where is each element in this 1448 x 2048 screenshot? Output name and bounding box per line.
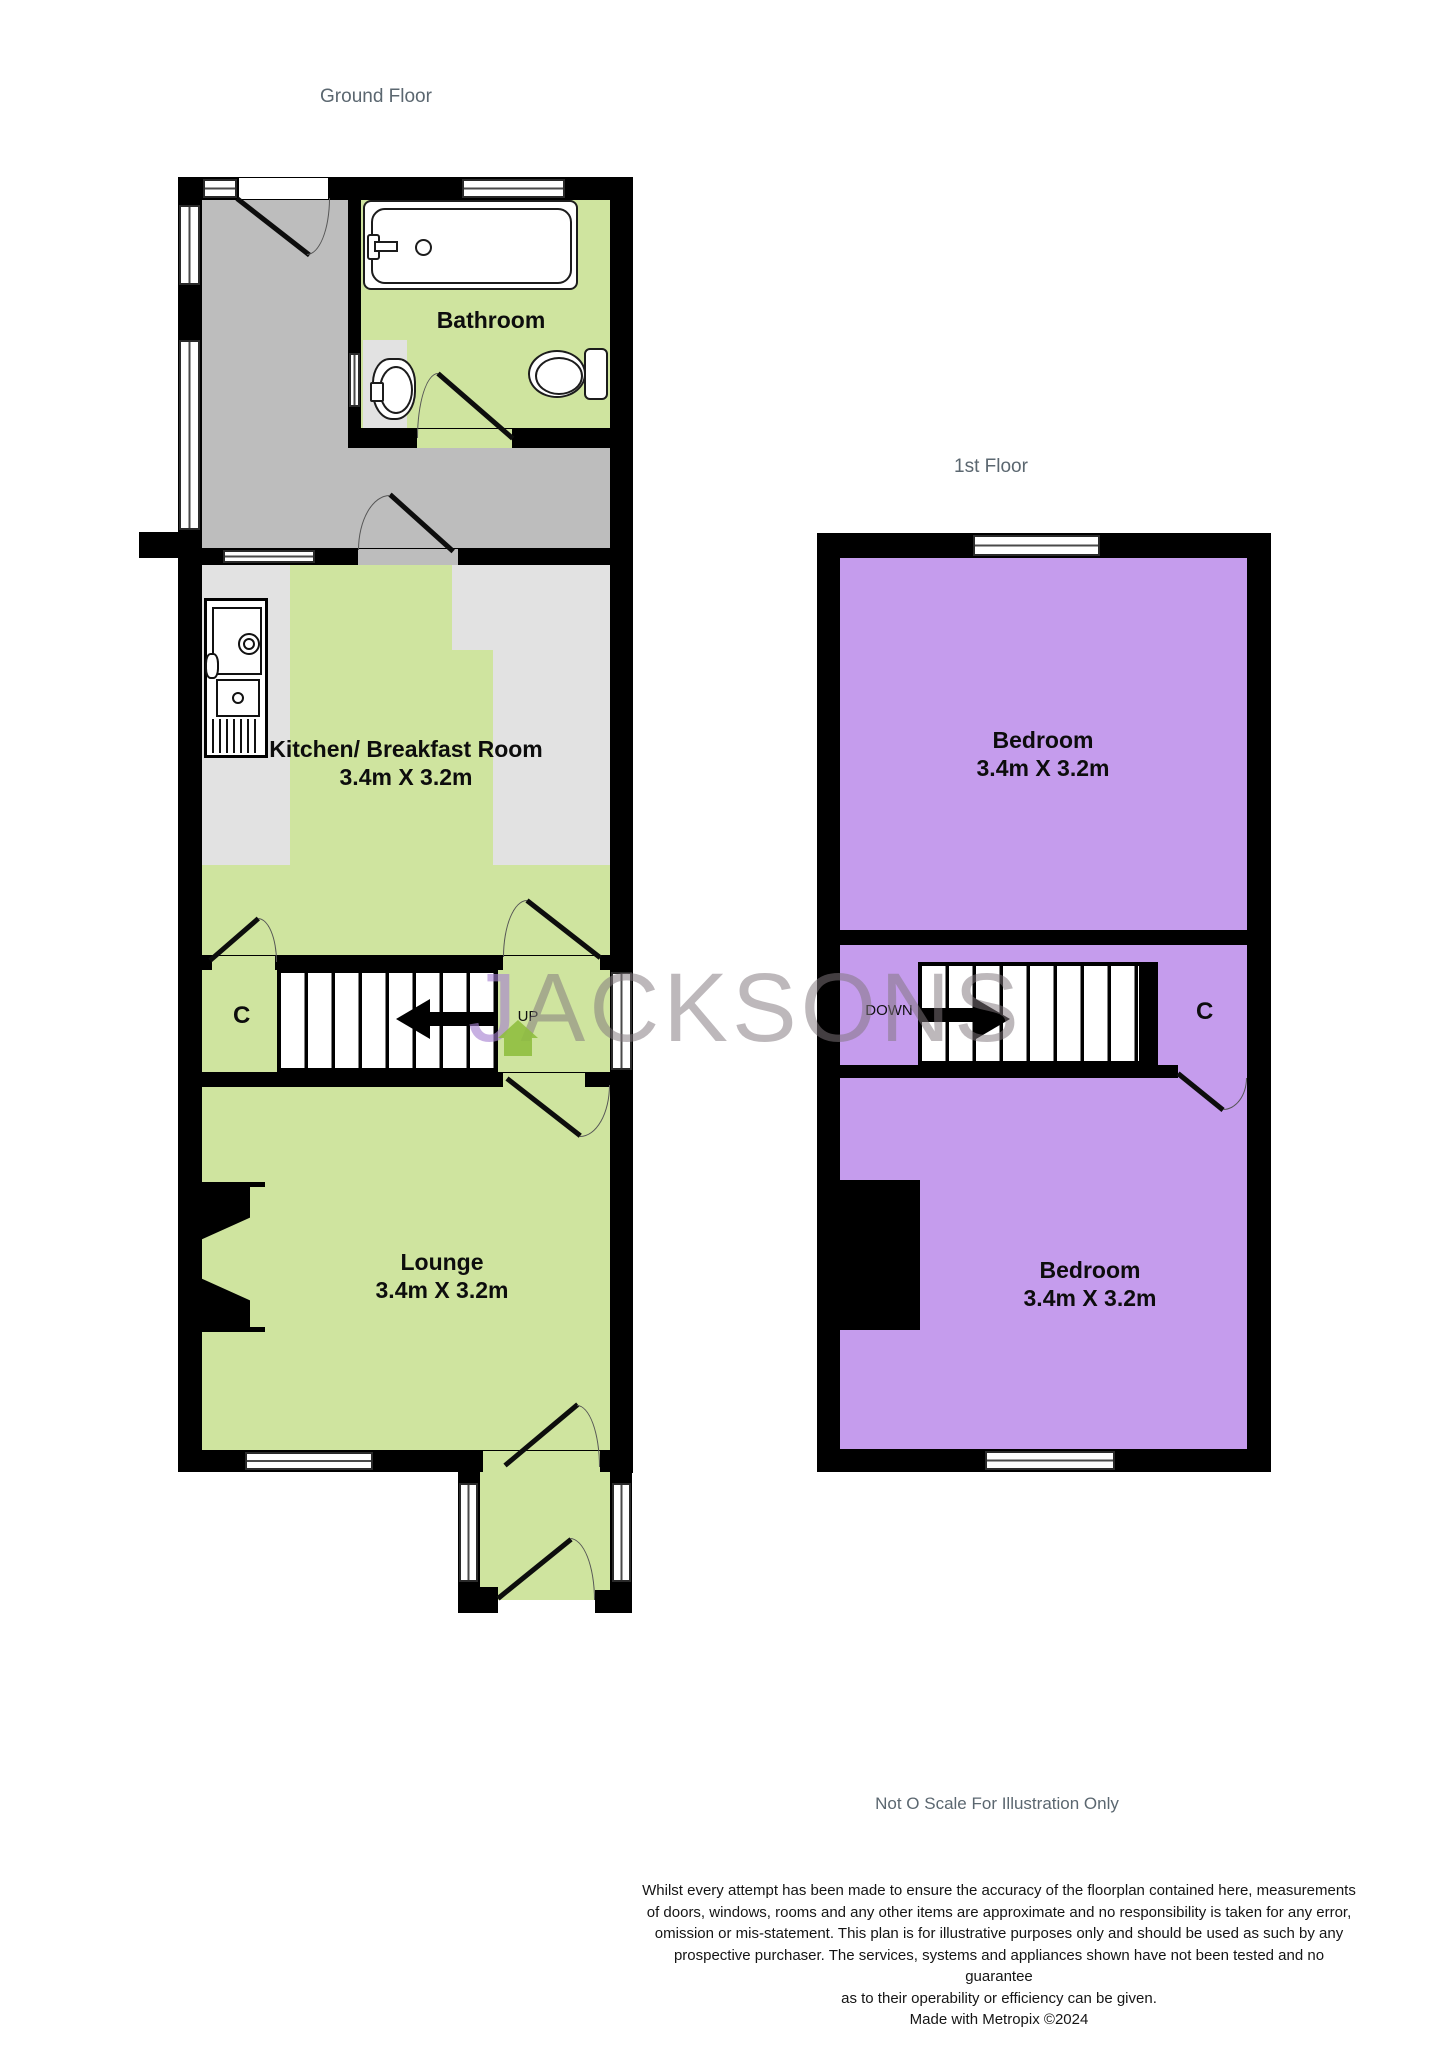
wall-segment — [139, 532, 202, 558]
up-arrow-head — [396, 999, 430, 1039]
kitchen-sink-half-bowl — [216, 679, 260, 717]
sink-tap — [370, 382, 384, 402]
lounge-dims: 3.4m X 3.2m — [242, 1276, 642, 1304]
stairs-newel-wall — [1143, 962, 1158, 1065]
first-floor-label: 1st Floor — [891, 456, 1091, 478]
wall-segment — [595, 1590, 632, 1613]
bedroom-back-label: Bedroom 3.4m X 3.2m — [890, 1256, 1290, 1312]
house-icon-body — [504, 1038, 532, 1056]
disclaimer: Whilst every attempt has been made to en… — [639, 1880, 1359, 2031]
kitchen-counter-top — [452, 565, 610, 650]
lounge-name: Lounge — [242, 1248, 642, 1276]
house-icon — [498, 1020, 538, 1038]
toilet-bowl — [528, 350, 586, 398]
bedroom-front-dims: 3.4m X 3.2m — [843, 754, 1243, 782]
wall-segment — [840, 1065, 1178, 1078]
window — [462, 179, 565, 198]
kitchen-sink-tap — [205, 653, 219, 679]
disclaimer-line: Whilst every attempt has been made to en… — [639, 1880, 1359, 1902]
wall-segment — [1247, 533, 1271, 1472]
wall-segment — [458, 1587, 498, 1613]
bathtub-inner — [371, 208, 572, 284]
kitchen-sink-drain-inner — [243, 638, 255, 650]
kitchen-dims: 3.4m X 3.2m — [206, 763, 606, 791]
watermark-rest: ACKSONS — [521, 953, 1023, 1062]
toilet-seat — [535, 357, 583, 395]
toilet-cistern — [584, 348, 608, 400]
window — [203, 179, 237, 198]
disclaimer-line: as to their operability or efficiency ca… — [639, 1988, 1359, 2010]
kitchen-half-bowl-drain — [232, 692, 244, 704]
closet-label: C — [233, 1002, 250, 1030]
kitchen-name: Kitchen/ Breakfast Room — [206, 735, 606, 763]
bedroom-front-name: Bedroom — [843, 726, 1243, 754]
kitchen-door-opening — [358, 549, 458, 565]
front-door-opening — [239, 178, 328, 199]
floorplan-canvas: Ground Floor UP C — [0, 0, 1448, 2048]
window — [179, 205, 200, 285]
lounge-label: Lounge 3.4m X 3.2m — [242, 1248, 642, 1304]
watermark: JACKSONS — [468, 952, 1023, 1064]
bedroom-back-dims: 3.4m X 3.2m — [890, 1284, 1290, 1312]
bathtub — [363, 200, 578, 290]
disclaimer-line: of doors, windows, rooms and any other i… — [639, 1902, 1359, 1924]
entrance-hall-floor — [202, 200, 348, 550]
scale-note: Not O Scale For Illustration Only — [747, 1794, 1247, 1814]
bathroom-sink — [372, 358, 416, 420]
ground-floor-label: Ground Floor — [276, 86, 476, 108]
bathroom-label: Bathroom — [391, 306, 591, 334]
sink-basin — [379, 366, 413, 414]
bedroom-back-name: Bedroom — [890, 1256, 1290, 1284]
kitchen-sink-bowl — [212, 607, 262, 675]
window — [245, 1452, 373, 1470]
bedroom-front-label: Bedroom 3.4m X 3.2m — [843, 726, 1243, 782]
ff-closet-opening — [1180, 1063, 1247, 1078]
bathtub-drain — [415, 239, 432, 256]
wall-segment — [840, 930, 1247, 945]
kitchen-label: Kitchen/ Breakfast Room 3.4m X 3.2m — [206, 735, 606, 791]
bathtub-tap-spout — [374, 241, 398, 252]
window — [612, 1483, 631, 1582]
kitchen-sink-unit — [204, 598, 268, 758]
window — [985, 1451, 1115, 1470]
closet-label: C — [1196, 998, 1213, 1026]
window — [459, 1483, 478, 1582]
window — [179, 340, 200, 530]
metropix-credit: Made with Metropix ©2024 — [639, 2009, 1359, 2031]
disclaimer-line: prospective purchaser. The services, sys… — [639, 1945, 1359, 1988]
window — [973, 535, 1100, 556]
window — [223, 550, 315, 563]
window — [349, 353, 360, 407]
disclaimer-line: omission or mis-statement. This plan is … — [639, 1923, 1359, 1945]
